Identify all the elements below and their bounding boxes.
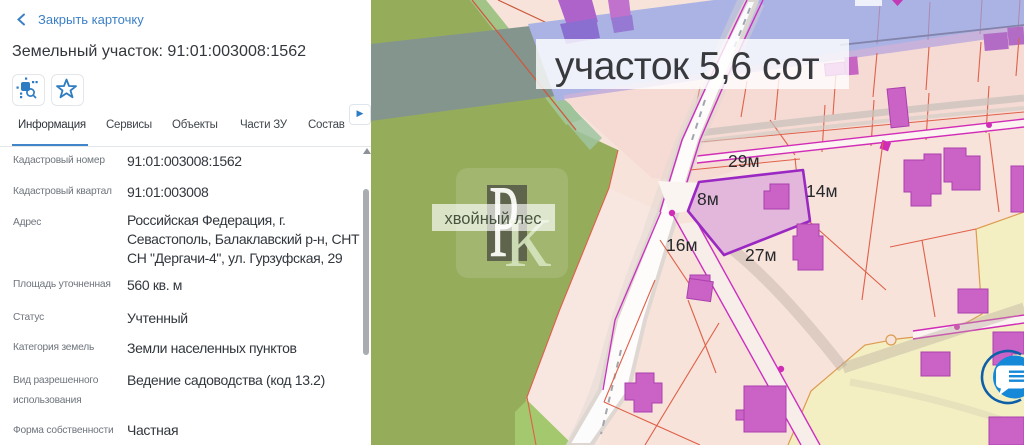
svg-text:16м: 16м: [666, 235, 698, 255]
svg-text:27м: 27м: [745, 245, 777, 265]
svg-text:хвойный лес: хвойный лес: [444, 210, 541, 228]
svg-text:14м: 14м: [806, 181, 838, 201]
svg-text:участок 5,6 сот: участок 5,6 сот: [555, 45, 820, 88]
svg-text:8м: 8м: [697, 189, 719, 209]
svg-text:29м: 29м: [728, 151, 760, 171]
